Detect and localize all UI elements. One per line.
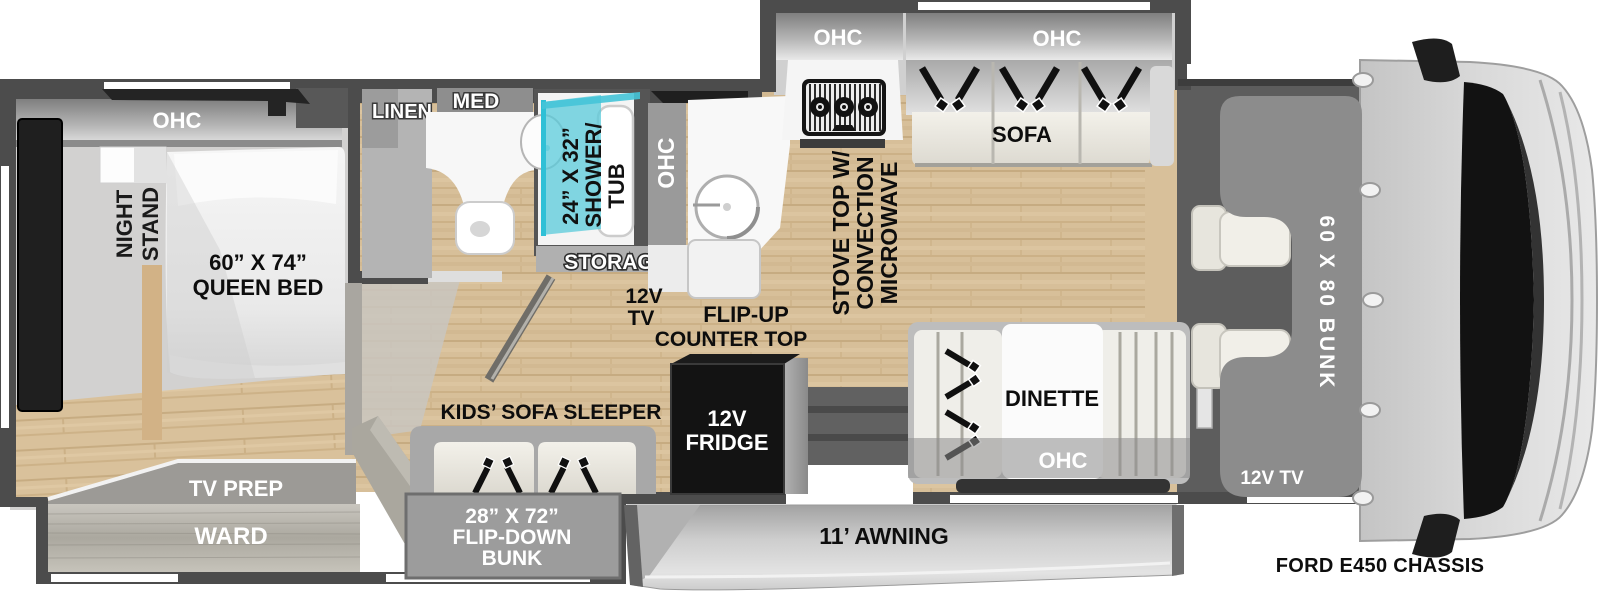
svg-text:STAND: STAND (138, 187, 163, 261)
svg-text:NIGHT: NIGHT (112, 189, 137, 258)
svg-text:OHC: OHC (1039, 448, 1088, 473)
svg-text:LINEN: LINEN (372, 101, 432, 123)
svg-text:24” X 32”: 24” X 32” (558, 127, 583, 225)
svg-text:OHC: OHC (153, 108, 202, 133)
svg-text:COUNTER TOP: COUNTER TOP (655, 328, 807, 351)
svg-text:BUNK: BUNK (482, 547, 543, 570)
svg-text:KIDS’ SOFA SLEEPER: KIDS’ SOFA SLEEPER (441, 401, 662, 424)
svg-text:TV PREP: TV PREP (189, 476, 283, 501)
svg-text:QUEEN BED: QUEEN BED (193, 275, 324, 300)
svg-text:FLIP-DOWN: FLIP-DOWN (453, 526, 572, 549)
svg-text:FLIP-UP: FLIP-UP (703, 302, 789, 327)
svg-text:OHC: OHC (1033, 26, 1082, 51)
svg-text:SHOWER/: SHOWER/ (581, 122, 606, 227)
svg-text:12V TV: 12V TV (1240, 468, 1304, 489)
svg-text:FRIDGE: FRIDGE (685, 430, 768, 455)
svg-text:60” X 74”: 60” X 74” (209, 250, 307, 275)
svg-text:STOVE TOP W/: STOVE TOP W/ (828, 150, 854, 315)
svg-text:60 X 80 BUNK: 60 X 80 BUNK (1315, 216, 1338, 391)
svg-text:WARD: WARD (194, 523, 267, 550)
svg-text:12V: 12V (625, 285, 662, 308)
svg-text:12V: 12V (707, 406, 746, 431)
svg-text:MED: MED (453, 90, 500, 113)
svg-text:OHC: OHC (814, 25, 863, 50)
svg-text:DINETTE: DINETTE (1005, 386, 1099, 411)
svg-text:OHC: OHC (653, 137, 679, 188)
svg-text:28” X 72”: 28” X 72” (465, 505, 558, 528)
svg-text:SOFA: SOFA (992, 122, 1052, 147)
svg-text:TV: TV (628, 307, 655, 330)
svg-text:11’ AWNING: 11’ AWNING (819, 523, 949, 549)
svg-text:FORD E450 CHASSIS: FORD E450 CHASSIS (1276, 555, 1485, 577)
svg-text:CONVECTION: CONVECTION (852, 156, 878, 309)
svg-text:MICROWAVE: MICROWAVE (876, 162, 902, 305)
svg-text:TUB: TUB (604, 163, 629, 208)
